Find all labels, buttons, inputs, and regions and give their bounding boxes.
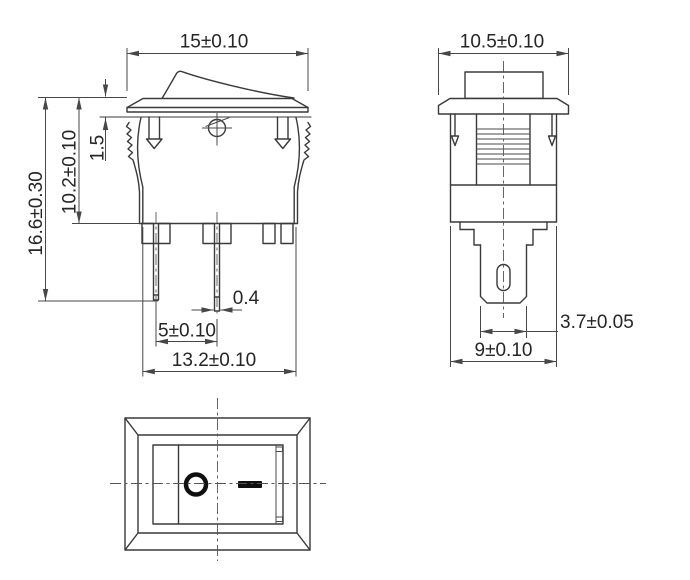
front-spring-serration-right — [303, 123, 310, 163]
dim-label-front-body-height: 10.2±0.10 — [60, 130, 81, 214]
front-view: 15±0.10 16.6±0.30 10.2±0.10 1.5 0.4 — [26, 32, 311, 377]
dim-label-front-flange-thickness: 1.5 — [88, 135, 109, 161]
front-spring-right-lower — [298, 163, 304, 224]
dim-label-side-body-width: 9±0.10 — [475, 340, 533, 361]
dim-label-side-terminal-width: 3.7±0.05 — [560, 312, 634, 333]
side-clip-left — [452, 114, 459, 146]
dim-side-terminal-width: 3.7±0.05 — [481, 306, 634, 338]
front-pin-1 — [154, 212, 159, 305]
front-clip-right — [275, 117, 291, 149]
front-spring-left-lower — [134, 163, 140, 224]
drawing-canvas: 15±0.10 16.6±0.30 10.2±0.10 1.5 0.4 — [0, 0, 690, 580]
dim-label-front-terminal-thickness: 0.4 — [233, 288, 260, 309]
front-mounting-hole — [202, 113, 232, 146]
top-rocker-opening — [153, 445, 283, 524]
top-rocker-side-strip — [276, 445, 283, 524]
side-clip-right — [549, 114, 556, 146]
dim-label-front-top-width: 15±0.10 — [180, 32, 249, 53]
front-rocker-actuator — [162, 71, 294, 98]
side-rocker-actuator — [465, 72, 543, 99]
dim-front-overall-height: 16.6±0.30 — [26, 98, 158, 302]
front-terminal-blocks — [142, 224, 293, 244]
dim-label-front-overall-height: 16.6±0.30 — [26, 171, 47, 255]
rocker-switch-drawing: 15±0.10 16.6±0.30 10.2±0.10 1.5 0.4 — [0, 0, 690, 580]
side-view: 10.5±0.10 3.7±0.05 9±0.10 — [439, 32, 634, 368]
top-face-view — [110, 398, 326, 561]
front-flange — [127, 99, 308, 113]
dim-label-front-bottom-width: 13.2±0.10 — [172, 350, 256, 371]
on-symbol — [238, 481, 262, 488]
dim-label-side-top-width: 10.5±0.10 — [460, 32, 544, 53]
dim-label-front-terminal-pitch: 5±0.10 — [158, 321, 216, 342]
front-clip-left — [147, 117, 163, 149]
front-spring-serration-left — [127, 123, 134, 163]
dim-front-flange-thickness: 1.5 — [88, 79, 109, 161]
dim-front-terminal-thickness: 0.4 — [192, 288, 260, 310]
off-symbol — [186, 475, 206, 495]
front-pin-2 — [215, 212, 220, 317]
